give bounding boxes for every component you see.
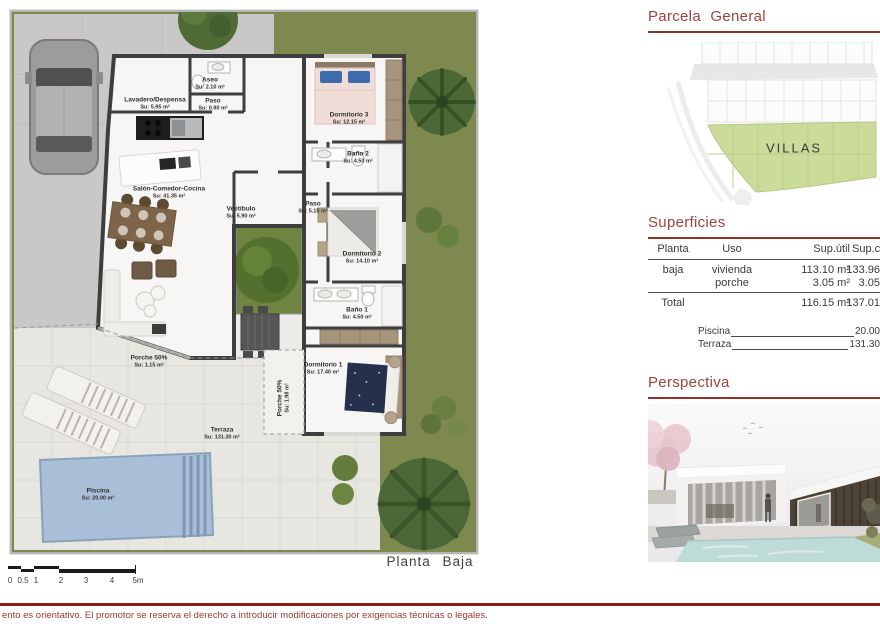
room-label-vestibulo: VestíbuloSu: 5.90 m²	[226, 206, 255, 221]
scale-label: 1	[34, 576, 38, 585]
room-label-dormitorio-3: Dormitorio 3Su: 12.15 m²	[330, 112, 369, 127]
pool	[40, 453, 213, 542]
col-header-sup-util: Sup.útil	[766, 243, 850, 255]
road-band	[690, 64, 878, 80]
scale-label: 0.5	[17, 576, 28, 585]
table-row-vivienda: baja vivienda 113.10 m² 133.96	[648, 264, 880, 278]
extra-row-terraza: Terraza 131.30	[698, 339, 880, 350]
cell-uso: porche	[700, 277, 764, 289]
parcel-row-top	[702, 42, 872, 64]
scale-label: 5m	[132, 576, 143, 585]
extra-label: Terraza	[698, 339, 731, 350]
kitchen-island	[119, 150, 201, 187]
parcel-block-middle	[708, 80, 876, 122]
perspective-render	[648, 404, 880, 562]
car	[25, 40, 103, 174]
room-label-bano-2: Baño 2Su: 4.50 m²	[343, 151, 372, 166]
render-pool	[676, 537, 880, 562]
room-label-porche: Porche 50%Su: 1.15 m²	[131, 355, 168, 370]
extra-label: Piscina	[698, 326, 730, 337]
extra-row-piscina: Piscina 20.00	[698, 326, 880, 337]
room-label-lavadero: Lavadero/DespensaSu: 5.95 m²	[124, 97, 185, 112]
table-row-total: Total 116.15 m² 137.01	[648, 297, 880, 311]
room-label-dormitorio-1: Dormitorio 1Su: 17.40 m²	[304, 362, 343, 377]
room-label-aseo: AseoSu: 2.10 m²	[195, 77, 224, 92]
person-2	[816, 504, 821, 522]
table-header-row: Planta Uso Sup.útil Sup.con	[648, 243, 880, 257]
cell-planta: baja	[648, 264, 698, 276]
room-label-terraza: TerrazaSu: 131.30 m²	[204, 427, 239, 442]
extra-value: 131.30	[849, 339, 880, 350]
room-label-paso-2: PasoSu: 5.15 m²	[298, 201, 327, 216]
col-header-uso: Uso	[700, 243, 764, 255]
scale-label: 3	[84, 576, 88, 585]
scale-label: 4	[110, 576, 114, 585]
plan-caption: Planta Baja	[350, 554, 510, 569]
cell-sup-con: 3.05	[800, 277, 880, 289]
site-plan	[648, 42, 880, 205]
kitchen-counter	[136, 116, 204, 140]
room-label-dormitorio-2: Dormitorio 2Su: 14.10 m²	[343, 251, 382, 266]
floor-plan: Lavadero/DespensaSu: 5.95 m² AseoSu: 2.1…	[10, 10, 478, 554]
table-divider	[648, 292, 880, 293]
cell-total-con: 137.01	[800, 297, 880, 309]
cell-total-label: Total	[648, 297, 698, 309]
room-label-paso-1: PasoSu: 0.90 m²	[198, 98, 227, 113]
villas-zone-label: VILLAS	[766, 141, 822, 156]
floor-plan-drawing	[12, 12, 476, 552]
scale-label: 2	[59, 576, 63, 585]
col-header-sup-con: Sup.con	[852, 243, 880, 255]
room-label-piscina: PiscinaSu: 20.00 m²	[82, 488, 114, 503]
room-label-porche-vertical: Porche 50%Su: 1.98 m²	[277, 380, 292, 417]
section-title-parcela: Parcela General	[648, 8, 880, 33]
palm-tree-bottom	[378, 458, 470, 550]
hedge	[648, 490, 676, 504]
footer-rule	[0, 603, 880, 606]
palm-tree-top-right	[409, 69, 475, 135]
extra-value: 20.00	[855, 326, 880, 337]
col-header-planta: Planta	[648, 243, 698, 255]
section-title-perspectiva: Perspectiva	[648, 374, 880, 399]
section-title-superficies: Superficies	[648, 214, 880, 239]
cell-sup-con: 133.96	[800, 264, 880, 276]
table-divider	[648, 259, 880, 260]
scale-label: 0	[8, 576, 12, 585]
room-label-salon: Salón-Comedor-CocinaSu: 41.35 m²	[133, 186, 205, 201]
table-row-porche: porche 3.05 m² 3.05	[648, 277, 880, 291]
cell-uso: vivienda	[700, 264, 764, 276]
scale-bar: 0 0.5 1 2 3 4 5m	[8, 566, 148, 590]
room-label-bano-1: Baño 1Su: 4.50 m²	[342, 307, 371, 322]
footer-disclaimer: ento es orientativo. El promotor se rese…	[2, 610, 872, 621]
brochure-page: Lavadero/DespensaSu: 5.95 m² AseoSu: 2.1…	[0, 0, 880, 640]
